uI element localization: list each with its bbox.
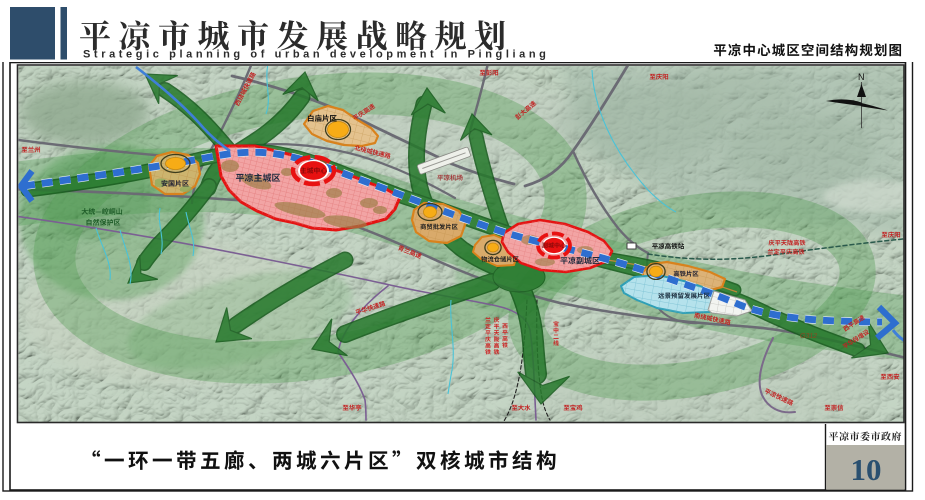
- svg-text:G312: G312: [800, 333, 817, 340]
- svg-text:Strategic planning of urban de: Strategic planning of urban development …: [83, 49, 550, 61]
- svg-text:10: 10: [851, 452, 882, 487]
- svg-text:N: N: [858, 72, 865, 82]
